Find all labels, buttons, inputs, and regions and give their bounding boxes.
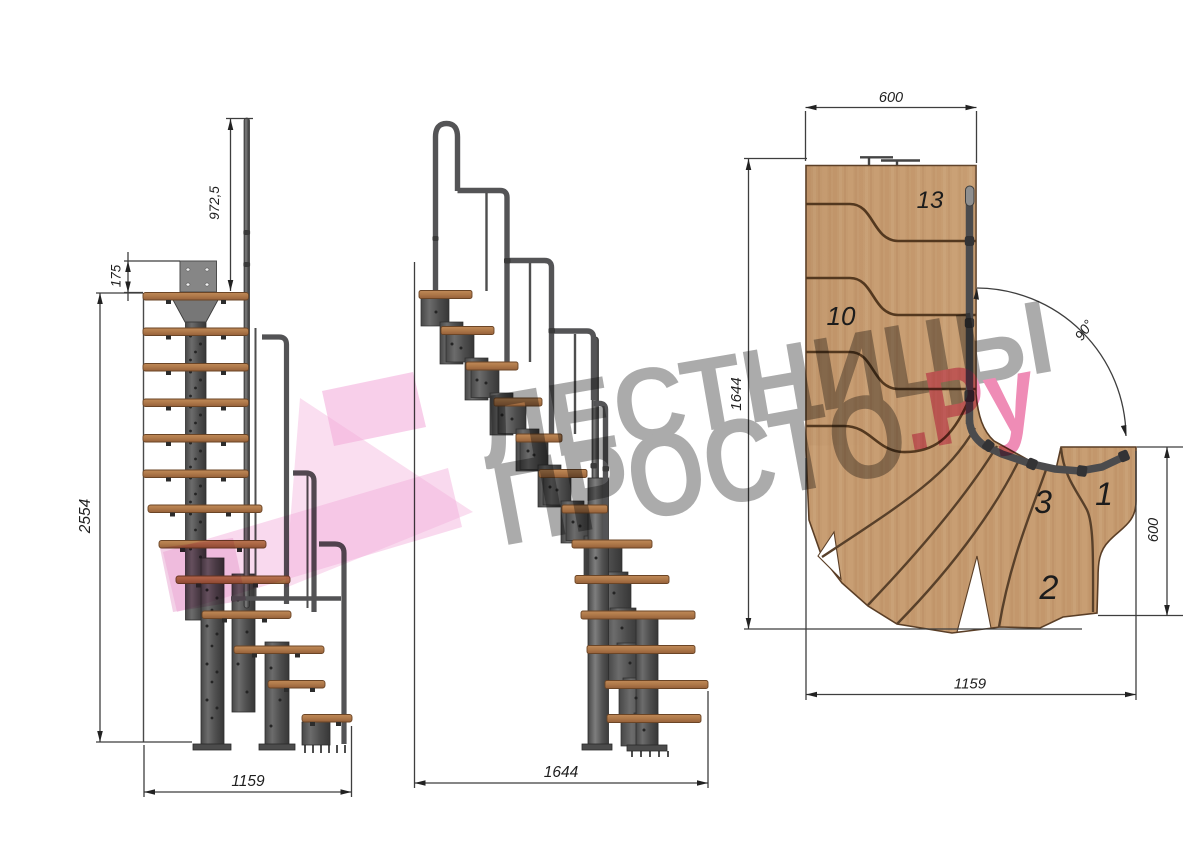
svg-text:1: 1 [1095, 476, 1113, 512]
svg-text:600: 600 [1146, 518, 1162, 542]
svg-text:600: 600 [879, 90, 903, 106]
svg-text:175: 175 [109, 264, 124, 287]
svg-text:13: 13 [917, 187, 944, 214]
svg-text:1159: 1159 [231, 773, 265, 790]
svg-text:1159: 1159 [954, 676, 987, 693]
svg-text:1644: 1644 [544, 764, 579, 781]
svg-text:3: 3 [1034, 484, 1052, 520]
svg-text:972,5: 972,5 [207, 186, 222, 220]
svg-text:2554: 2554 [77, 498, 94, 534]
svg-text:2: 2 [1039, 569, 1059, 607]
